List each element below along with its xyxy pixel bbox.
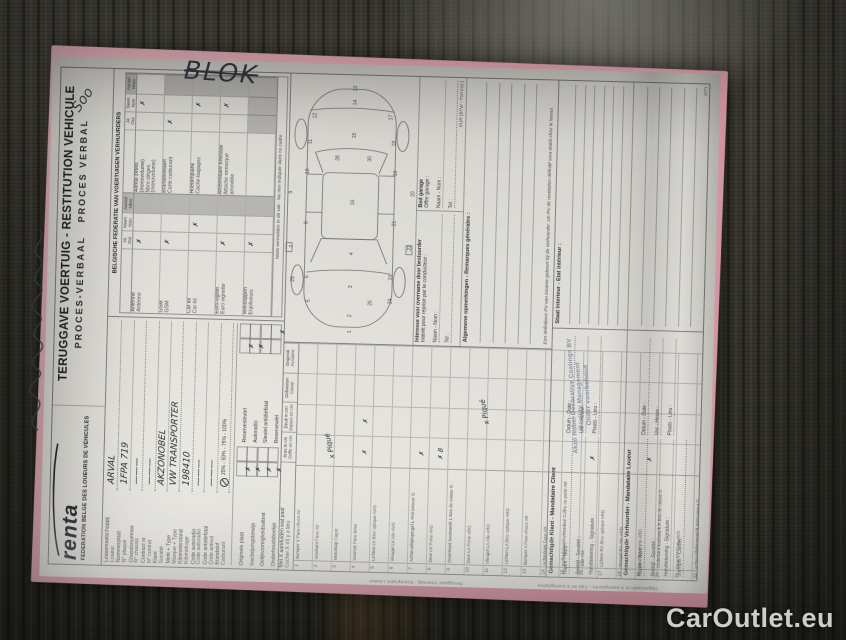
document-ja-cell <box>270 339 281 354</box>
damage-mark-cell: ✗ <box>410 437 429 468</box>
equipment-item: Aantal zetels (monovolume)Nbre sièges (m… <box>134 130 163 194</box>
equipment-label-fr: Carte carburant <box>168 132 175 193</box>
document-item: Reservewiel✗ <box>268 324 282 443</box>
damage-part-fr: Bloc optique ARG <box>504 508 510 543</box>
ruled-line <box>587 86 595 325</box>
subtitle-nl: PROCES-VERBAAL <box>73 236 86 349</box>
equipment-ja-cell <box>189 232 216 251</box>
equipment-ja-cell: ✗ <box>245 234 272 253</box>
documents-checklist: Originele plaat✗Inschrijvingsbewijs✗Geli… <box>231 323 284 566</box>
pv-note-fr: Un PV de restitution définitif sera étab… <box>547 107 555 222</box>
ruled-line <box>516 84 525 344</box>
damage-mark-cell <box>505 440 524 471</box>
damage-column-fr: Griffe en cm <box>287 433 293 462</box>
damage-mark-cell <box>412 346 431 377</box>
diagram-zone-number: 20 <box>410 191 416 197</box>
damage-part-nl: Onderkant koetswerk L <box>446 518 452 563</box>
equipment-label-fr: Enjoliveurs <box>249 254 256 315</box>
diagram-zone-number: 28 <box>335 155 341 161</box>
documents-column: Reservesleutel✗Autoradio✗Sleutel antidie… <box>237 323 284 443</box>
damage-mark-cell <box>392 406 411 437</box>
equipment-ja-cell <box>192 113 219 132</box>
equipment-item <box>246 132 275 196</box>
equipment-label-fr: Euro vignette <box>221 253 228 314</box>
ruled-line <box>529 84 538 344</box>
damage-row-number: 11 <box>483 565 501 575</box>
document-ja-mark: ✗ <box>244 466 252 473</box>
car-top-view-diagram: 1226352462347228219201019162830111812171… <box>279 73 426 345</box>
damage-part-name: Bumper A Pare-chocs AR <box>521 471 541 566</box>
damage-part-fr: Aile ARG <box>485 524 490 542</box>
damage-mark-cell <box>526 349 545 380</box>
equipment-label-fr: Nbre sièges (monovolume) <box>146 132 159 193</box>
paper-stack: Teruggave Voertuig - Exemplaire Loueur O… <box>39 56 720 593</box>
damage-mark-cell <box>449 408 468 439</box>
diagram-zone-number: 1 <box>347 330 353 333</box>
oui-label: Oui <box>130 112 135 129</box>
damage-mark-cell <box>335 405 354 436</box>
equipment-item: Car kitCar kit <box>187 250 216 314</box>
lessor-signature-right: Datum - Date : Uur - Heure : Plaats - Li… <box>635 334 690 436</box>
garage-offer-box: Bod garage Offre garage : Naam - Nom : T… <box>417 77 466 212</box>
equipment-label-fr: Car kit <box>193 253 200 314</box>
field-handwritten-value: AKZONOBEL <box>158 429 168 486</box>
interior-ruled-lines <box>561 85 631 326</box>
equipment-ja-cell <box>248 114 275 133</box>
equipment-ja-mark: ✗ <box>133 237 145 244</box>
wheel-rear-right <box>397 121 410 151</box>
identification-band: LeasemaatschappijLoueurARVALNummerplaatN… <box>102 69 292 569</box>
equipment-item: HoedenplankCache-bagages <box>190 131 219 195</box>
equipment-aantal-cell <box>218 195 246 216</box>
column-ja: JaOui <box>125 111 135 129</box>
offer-row: Interesse voor overname door bestuurder … <box>413 77 467 346</box>
damage-mark-cell <box>298 343 317 374</box>
equipment-ja-cell: ✗ <box>217 233 244 252</box>
ruled-line <box>606 86 614 325</box>
damage-part-nl: Deur LA <box>465 547 470 563</box>
equipment-ja-cell: ✗ <box>133 231 160 250</box>
damage-mark-cell <box>506 379 525 410</box>
equipment-item: BrandstofkaartCarte carburant <box>162 130 191 194</box>
handwritten-blok-note: BLOK <box>183 55 259 89</box>
damage-part-nl: Lichten LA <box>503 544 509 565</box>
equipment-ja-cell: ✗ <box>161 232 188 251</box>
damage-mark: ✗ <box>418 450 427 456</box>
diagram-zone-number: 26 <box>368 300 374 306</box>
damage-row-number: 1 <box>293 560 311 570</box>
damage-part-nl: Deur LV <box>427 547 432 563</box>
fuel-levels: 25% - 50% - 75% - 100% <box>221 419 228 475</box>
damage-part-nl: Voorruit <box>351 545 356 560</box>
equipment-neen-mark: ✗ <box>190 221 202 228</box>
damage-part-fr: Porte AVG <box>428 525 434 546</box>
signature-band: Gemachtigde Klant - Mandataire Client Na… <box>546 81 709 581</box>
lessor-signature-box: Gemachtigde Verhuurder - Mandataire Loue… <box>621 329 702 580</box>
lessor-signature-row: Gemachtigde Verhuurder - Mandataire Loue… <box>621 83 709 581</box>
remarks-ruled-lines <box>469 82 548 344</box>
federation-table: JaOuiNeenNonAantalNbreJaOuiNeenNonAantal… <box>119 72 278 317</box>
damage-mark: ✗ <box>703 458 710 464</box>
damage-part-fr: Rétroviseur G <box>410 492 416 519</box>
document-neen-mark: ✗ <box>279 329 287 336</box>
damage-mark-cell <box>391 437 410 468</box>
garage-name-line: Naam - Nom : <box>436 80 446 208</box>
damage-mark-cell <box>334 435 353 466</box>
fuel-gauge: 25% - 50% - 75% - 100% <box>220 419 231 487</box>
damage-part-nl: Achteruitkijkspiegel L <box>408 521 414 562</box>
field-labels: BrandstofCarburant <box>216 493 229 565</box>
damage-part-name: Motorkap Capot <box>331 466 351 561</box>
damage-mark-cell <box>317 343 336 374</box>
equipment-neen-cell <box>217 215 244 234</box>
client-signature-row: Gemachtigde Klant - Mandataire Client Na… <box>546 81 634 579</box>
general-remarks-box: Algemene opmerkingen - Remarques général… <box>460 78 549 348</box>
column-aantal: AantalNbre <box>123 193 134 213</box>
garage-eur-note: EUR (BTW - TVA incl.) <box>458 81 464 127</box>
diagram-zone-number: 23 <box>388 274 394 280</box>
damage-mark-cell <box>430 407 449 438</box>
damage-mark-cell <box>336 344 355 375</box>
damage-row-number: 8 <box>426 563 444 573</box>
form-body: renta FEDERATION BELGE DES LOUEURS DE VÉ… <box>48 67 711 582</box>
damage-mark-cell <box>487 409 506 440</box>
rear-window-lines <box>315 152 387 174</box>
equipment-ja-mark: ✗ <box>217 239 229 246</box>
damage-part-name: Lichten LA Bloc optique ARG <box>502 470 522 565</box>
equipment-item: Afneembare trekhaakAttache remorque amov… <box>218 132 247 196</box>
damage-row-number: 3 <box>331 561 349 571</box>
damage-mark-cell <box>487 378 506 409</box>
diagram-zone-number: 8 <box>304 221 310 224</box>
form-code: 1071 <box>703 86 708 96</box>
damage-row-number: 9 <box>445 564 463 574</box>
diagram-zone-number: 4 <box>349 252 355 255</box>
diagram-zone-number: 17 <box>388 114 394 120</box>
equipment-aantal-cell <box>134 193 162 214</box>
document-label-nl: Reservewiel <box>274 415 281 443</box>
damage-mark-cell <box>411 376 430 407</box>
damage-part-name: Voorruit Pare-brise <box>350 466 370 561</box>
damage-mark-cell <box>488 348 507 379</box>
nbre-label: Nbre <box>128 194 133 213</box>
driver-interest-box: Interesse voor overname door bestuurder … <box>413 210 463 346</box>
equipment-ja-cell: ✗ <box>164 112 191 131</box>
fuel-gauge-icon <box>220 478 229 487</box>
equipment-item: Euro-vignetEuro vignette <box>215 251 244 315</box>
diagram-zone-number: 25 <box>290 276 296 282</box>
lessor-place-line: Plaats - Lieu : <box>667 339 677 436</box>
damage-column-fr: Cassé <box>289 373 295 402</box>
field-handwritten-value: ——— <box>207 459 217 487</box>
diagram-zone-number: 19 <box>393 171 399 177</box>
damage-mark-cell <box>373 375 392 406</box>
damage-row-number: 7 <box>407 563 425 573</box>
equipment-label-fr: GSM <box>165 252 172 313</box>
damage-mark-cell <box>316 404 335 435</box>
field-handwritten-value: ——— <box>133 457 143 485</box>
photo-of-document: Teruggave Voertuig - Exemplaire Loueur O… <box>0 0 846 640</box>
car-diagram-box: 1226352462347228219201019162830111812171… <box>285 74 421 345</box>
damage-column-head: Kras in cmGriffe en cm <box>281 432 295 462</box>
damage-mark-cell <box>525 379 544 410</box>
damage-part-fr: Pare-brise <box>352 524 358 544</box>
roof-panel <box>321 172 379 239</box>
damage-part-fr: Aile AVG <box>390 522 395 539</box>
document-neen-cell <box>268 447 279 462</box>
equipment-neen-cell <box>245 216 272 235</box>
lessor-signature-grid: Naam - Nom : Bedrijf - Société : Handtek… <box>632 334 690 577</box>
damage-column-head: Deuk in cmImpact en cm <box>282 402 296 432</box>
damage-mark-cell <box>430 377 449 408</box>
damage-part-name: Bumper V Pare-chocs AV <box>293 465 313 560</box>
field-handwritten-value: ——— <box>195 459 205 487</box>
car-body-outline <box>303 88 397 328</box>
diagram-zone-number: 21 <box>392 220 398 226</box>
client-name-line: Naam - Nom : <box>563 437 574 574</box>
field-handwritten-value: ——— <box>145 457 155 485</box>
client-company-line: Bedrijf - Société : <box>576 437 587 574</box>
lessor-hour-line: Uur - Heure : <box>654 338 664 435</box>
damage-mark-cell <box>506 409 525 440</box>
equipment-neen-mark: ✗ <box>193 101 205 108</box>
non-label: Non <box>131 94 136 111</box>
damage-mark-cell <box>448 438 467 469</box>
column-neen: NeenNon <box>122 213 132 231</box>
client-signature-left: Naam - Nom : Bedrijf - Société : Handtek… <box>557 433 600 575</box>
interior-state-box: Staat interieur - Etat intérieur : <box>553 81 634 330</box>
damage-part-name: Lichten LV Bloc optique AVG <box>369 467 389 562</box>
diagram-and-boxes: 1226352462347228219201019162830111812171… <box>285 74 559 349</box>
diagram-zone-number: 3 <box>348 285 354 288</box>
damage-mark-cell <box>486 439 505 470</box>
damage-mark-cell: ✗ B <box>429 438 448 469</box>
damage-mark-cell <box>507 348 526 379</box>
field-handwritten-value: VW TRANSPORTER <box>170 401 181 487</box>
damage-mark-cell <box>335 374 354 405</box>
document-item: Onderhoudsboekje✗ <box>265 447 279 566</box>
diagram-zone-number: 13 <box>353 85 359 91</box>
equipment-ja-cell <box>220 114 247 133</box>
damage-mark-cell: ✗ <box>354 405 373 436</box>
diagram-zone-number: 14 <box>353 99 359 105</box>
diagram-zone-number: 5 <box>306 299 312 302</box>
damage-mark-cell <box>355 344 374 375</box>
diagram-zone-number: 16 <box>350 199 356 205</box>
diagram-zone-number: 6 <box>304 275 310 278</box>
damage-mark-cell <box>524 440 543 471</box>
wheel-front-right <box>393 267 406 297</box>
damage-part-name: Deur LV Porte AVG <box>426 468 446 563</box>
lessor-date-line: Datum - Date : <box>641 338 651 435</box>
damage-column-head: OngevalAccident <box>284 343 298 373</box>
equipment-neen-cell <box>248 96 275 115</box>
damage-part-nl: Vleugel LV <box>389 540 395 561</box>
caroutlet-watermark: CarOutlet.eu <box>666 603 834 634</box>
damage-mark-cell <box>525 410 544 441</box>
damage-band: Met X aanduiden wat past Cocher X s'il y… <box>279 74 560 577</box>
equipment-label-fr: Cache-bagages <box>196 133 203 194</box>
damage-part-nl: Vleugel LA <box>484 543 490 564</box>
damage-mark-cell <box>467 439 486 470</box>
diagram-zone-number: 18 <box>392 140 398 146</box>
damage-part-fr: Bloc optique AVG <box>371 505 377 539</box>
equipment-neen-cell <box>133 213 160 232</box>
interest-name-line: Naam - Nom : <box>432 215 442 343</box>
document-label-nl: Onderhoudsboekje <box>270 522 277 566</box>
damage-mark-cell <box>431 346 450 377</box>
pv-note-nl: Een definitieve PV van inname gebeurt bi… <box>544 223 552 345</box>
diagram-zone-number: 24 <box>388 298 394 304</box>
lessor-stamp-line: Stempel - Cachet : <box>677 440 688 577</box>
damage-mark-cell <box>354 375 373 406</box>
rear-face-line <box>311 107 395 112</box>
ruled-line <box>677 88 685 327</box>
lessor-signature-left: Naam - Nom : Bedrijf - Société : Handtek… <box>632 435 688 577</box>
subtitle-fr: PROCES VERBAL <box>77 119 90 223</box>
client-place-line: Plaats - Lieu : <box>592 337 602 434</box>
damage-mark-cell <box>297 404 316 435</box>
damage-mark-cell <box>372 436 391 467</box>
diagram-zone-number: 9 <box>288 191 294 194</box>
damage-part-fr: Bas de caisse G <box>448 485 454 517</box>
damage-mark: ✗ <box>361 449 370 455</box>
equipment-neen-cell: ✗ <box>220 96 247 115</box>
diagram-zone-number: 7 <box>289 245 295 248</box>
equipment-neen-cell: ✗ <box>192 95 219 114</box>
federation-checklist: BELGISCHE FEDERATIE VAN VOERTUIGEN VERHU… <box>108 69 290 321</box>
equipment-neen-mark: ✗ <box>221 102 233 109</box>
windshield-line <box>311 238 388 264</box>
damage-mark-cell <box>296 434 315 465</box>
damage-mark-cell <box>449 377 468 408</box>
damage-row-number: 10 <box>464 564 482 574</box>
damage-row-number: 12 <box>502 565 520 575</box>
equipment-aantal-cell <box>137 74 165 95</box>
ruled-line <box>652 87 660 326</box>
ruled-line <box>479 83 488 343</box>
damage-part-name: Achteruitkijkspiegel L Rétroviseur G <box>407 468 427 563</box>
equipment-neen-cell <box>161 214 188 233</box>
damage-mark-cell <box>374 345 393 376</box>
nbre-label: Nbre <box>131 74 136 93</box>
ruled-line <box>491 83 500 343</box>
hatch-line <box>315 148 387 154</box>
damage-row-number: 5 <box>369 562 387 572</box>
column-aantal: AantalNbre <box>126 73 137 93</box>
garage-tel-line: Tel : <box>448 81 458 209</box>
damage-part-name: Onderkant koetswerk L Bas de caisse G <box>445 469 465 564</box>
damage-part-nl: Voorkant <box>313 542 318 559</box>
field-label-fr: Carburant <box>222 493 230 565</box>
equipment-ja-mark: ✗ <box>164 118 176 125</box>
damage-row-number: 4 <box>350 561 368 571</box>
lessor-signature-line: Handtekening - Signature : <box>664 439 675 576</box>
damage-part-fr: Pare-chocs AR <box>523 515 529 544</box>
damage-mark-cell <box>450 347 469 378</box>
damage-part-nl: Bumper A <box>522 546 527 565</box>
damage-column-fr: Impact en cm <box>288 403 294 432</box>
field-handwritten-value: 1FPA 719 <box>121 442 131 485</box>
hood-line <box>306 269 390 274</box>
extra-ruled-area: 1071 <box>628 83 709 332</box>
damage-mark-cell <box>316 374 335 405</box>
vehicle-fields-list: LeasemaatschappijLoueurARVALNummerplaatN… <box>104 320 234 565</box>
vehicle-fields: LeasemaatschappijLoueurARVALNummerplaatN… <box>102 316 284 570</box>
interest-tel-line: Tel : <box>444 215 454 343</box>
equipment-item: WieldoppenEnjoliveurs <box>243 252 272 316</box>
damage-part-fr: Capot <box>333 529 338 541</box>
equipment-neen-cell: ✗ <box>189 214 216 233</box>
damage-mark-cell <box>392 376 411 407</box>
damage-part-name: Vleugel LA Aile ARG <box>483 470 503 565</box>
damage-table: Met X aanduiden wat past Cocher X s'il y… <box>279 342 552 577</box>
damage-mark-cell <box>469 347 488 378</box>
non-label: Non <box>127 214 132 231</box>
handwritten-margin-scribble <box>8 222 66 437</box>
damage-part-fr: Pare-chocs AV <box>295 509 301 538</box>
damage-part-nl: Motorkap <box>332 542 337 560</box>
damage-mark-cell <box>298 373 317 404</box>
field-handwritten-value: 198410 <box>182 451 192 487</box>
damage-part-nl: Lichten LV <box>370 540 376 561</box>
damage-row-number: 13 <box>521 566 539 576</box>
damage-mark: ✗ B <box>437 448 446 461</box>
damage-mark-cell: ✗ <box>353 436 372 467</box>
damage-part-nl: Bumper V <box>294 539 300 559</box>
damage-part-fr: Face AV <box>314 524 319 540</box>
federation-header-spacer <box>120 249 132 313</box>
diagram-zone-number: 22 <box>407 245 413 251</box>
documents-column: Originele plaat✗Inschrijvingsbewijs✗Geli… <box>234 446 281 566</box>
damage-row-number: 2 <box>312 560 330 570</box>
diagram-zone-number: 15 <box>352 132 358 138</box>
column-ja: JaOui <box>122 231 132 249</box>
diagram-zone-number: 30 <box>367 156 373 162</box>
lessor-name-line: Naam - Nom : <box>638 439 649 576</box>
equipment-aantal-cell <box>162 194 190 215</box>
equipment-label-fr: Antenne <box>137 251 144 312</box>
equipment-item: GSMGSM <box>159 250 188 314</box>
ruled-line <box>616 86 624 325</box>
document-ja-mark: ✗ <box>257 343 265 350</box>
client-signature-box: Gemachtigde Klant - Mandataire Client Na… <box>546 328 627 579</box>
damage-part-fr: Porte ARG <box>466 525 472 546</box>
damage-part-name: Deur LA Porte ARG <box>464 469 484 564</box>
equipment-ja-cell <box>136 112 163 131</box>
document-ja-mark: ✗ <box>265 466 273 473</box>
diagram-zone-number: 2 <box>347 314 353 317</box>
damage-part-name: Voorkant Face AV <box>312 465 332 560</box>
equipment-label-fr: Attache remorque amovible <box>224 134 237 195</box>
ruled-line <box>597 86 605 325</box>
client-signature-line: Handtekening - Signature : <box>589 437 600 574</box>
column-neen: NeenNon <box>126 93 136 111</box>
damage-part-name: Vleugel LV Aile AVG <box>388 467 408 562</box>
diagram-zone-number: 11 <box>308 139 314 145</box>
ruled-line <box>578 85 586 324</box>
document-ja-mark: ✗ <box>254 466 262 473</box>
equipment-aantal-cell <box>190 194 218 215</box>
damage-mark-cell <box>411 407 430 438</box>
damage-column-head: GebarstenCassé <box>283 372 297 402</box>
ruled-line <box>504 83 513 343</box>
equipment-neen-cell: ✗ <box>137 94 164 113</box>
damage-mark: ✗ <box>362 418 371 424</box>
extra-ruled-lines <box>630 87 707 328</box>
document-ja-mark: ✗ <box>247 343 255 350</box>
equipment-neen-mark: ✗ <box>137 100 149 107</box>
